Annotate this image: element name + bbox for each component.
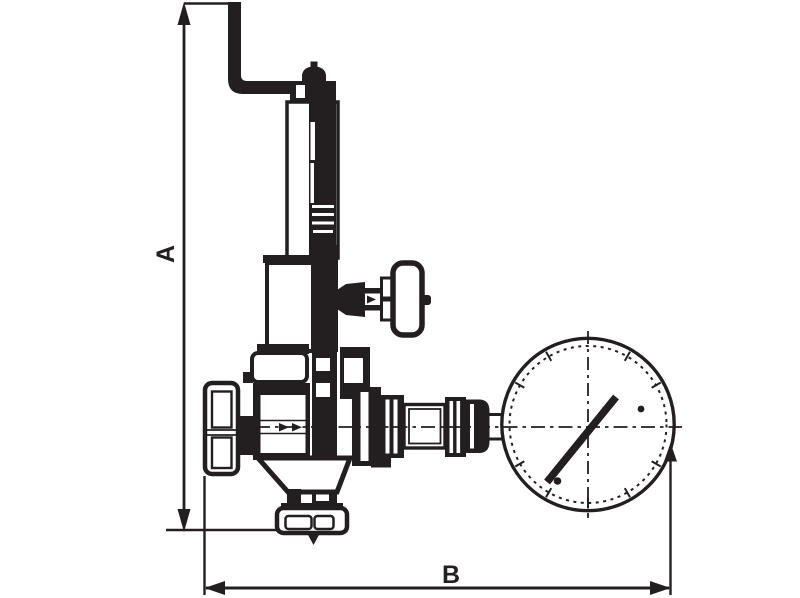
pressure-gauge (502, 331, 674, 518)
drawing-stage: A (0, 0, 800, 598)
centerline-arrow-icon (308, 534, 320, 545)
spring-coil-line (312, 222, 334, 225)
case-shell (267, 263, 313, 351)
test-valve-handle (393, 263, 422, 335)
dim-a-arrow-down-icon (178, 509, 191, 532)
dim-b-arrow-right-icon (650, 581, 671, 595)
lever-pipe-shape (228, 2, 303, 94)
bottom-flange (277, 503, 347, 545)
spring-coil-line (313, 230, 333, 233)
case-foot-block (252, 353, 307, 382)
test-valve-body (337, 282, 365, 317)
bonnet-dome (302, 67, 326, 82)
lever-pipe (228, 2, 303, 94)
body-window (261, 395, 306, 453)
dim-a-arrow-up-icon (178, 2, 191, 25)
dim-b-arrow-left-icon (205, 581, 226, 595)
dim-a-label: A (152, 245, 180, 263)
flow-arrow-icon (367, 296, 376, 304)
spring-coil-line (312, 213, 334, 216)
test-valve (337, 263, 431, 335)
gauge-dial-dot (554, 477, 562, 485)
spring-bonnet (287, 62, 338, 259)
dim-b-label: B (442, 561, 460, 589)
valve-technical-drawing: A (0, 0, 800, 598)
body-taper (258, 458, 350, 492)
spring-coil-line (312, 205, 334, 208)
gauge-dial-dot (638, 406, 645, 413)
case-stem-cap (317, 245, 339, 259)
case-stem-column (315, 245, 338, 352)
test-valve-handle-nub (421, 295, 431, 305)
inlet-handwheel (205, 383, 258, 474)
